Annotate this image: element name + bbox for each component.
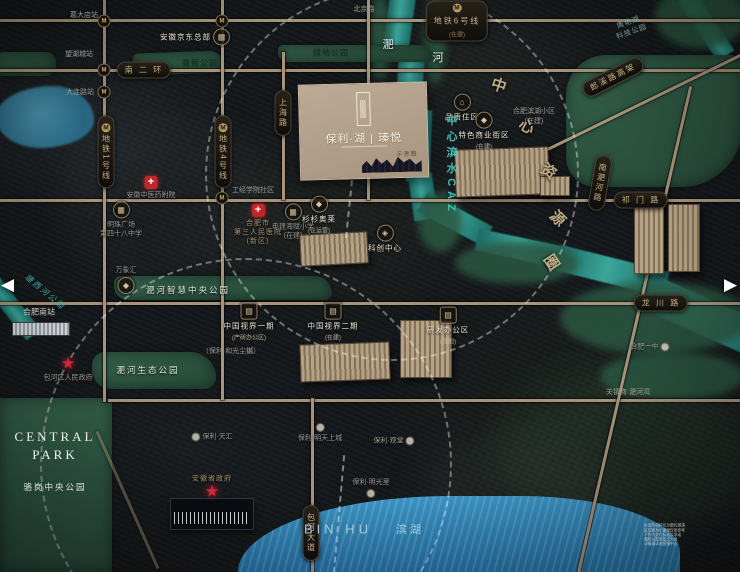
poi-hefei-no1-school-icon	[661, 343, 670, 352]
label-beijing-road: 北京路	[354, 4, 375, 14]
poi-featured-commercial-street-icon: ◆	[476, 112, 493, 129]
poi-rd-office-area-icon: ▤	[440, 307, 457, 324]
poi-poly-tianhui-icon	[191, 433, 200, 442]
central-park-title-en: CENTRAL PARK	[15, 428, 96, 464]
park-strip-west	[0, 52, 56, 76]
poi-rd-office-area: ▤研发办公区(规划)	[427, 307, 470, 346]
poi-poly-mingtian-shangcheng-icon	[316, 423, 325, 432]
project-site-block: 保利·湖 | 瑧悦 示意图	[298, 81, 429, 180]
poi-wanxianghui-mall-icon: ◆	[118, 277, 135, 294]
building-hefei-south-station	[12, 322, 70, 336]
label-station-gedadian: 葛大店站	[70, 10, 98, 20]
poi-third-peoples-hospital-icon: +	[252, 204, 265, 217]
label-poly-heguang-chenyue: （保利·和光尘樾）	[202, 346, 260, 356]
poi-hefei-no1-school: 合肥一中	[631, 342, 670, 351]
label-hefei-south-station: 合肥南站	[23, 307, 55, 318]
poi-featured-commercial-street: ◆特色商业街区(在建)	[459, 112, 510, 151]
road-pill-metro-line-6: M地铁6号线(在建)	[426, 1, 488, 42]
metro-station-marker: M	[98, 86, 111, 99]
label-xiangjie-park: 香街公园	[182, 58, 218, 69]
label-nanyanhu-tech-park: 南艳湖 科技公园	[612, 12, 649, 42]
building-tower-east	[668, 204, 700, 272]
poi-tcm-hospital-icon: +	[145, 176, 158, 189]
poi-baohe-district-government-icon: ★	[61, 357, 75, 371]
project-title: 保利·湖 | 瑧悦	[300, 128, 427, 147]
label-feihe-smart-central-park: 淝河智慧中央公园	[146, 284, 230, 296]
project-logo-mark	[355, 92, 370, 126]
poi-china-vision-phase1: ▤中国视界一期(产研办公区)	[224, 303, 275, 342]
poi-anhui-provincial-government-icon: ★	[205, 486, 219, 500]
poi-poly-mingtian-shangcheng: 保利·明天上城	[298, 423, 342, 443]
poi-sci-innovation-center-icon: ◈	[377, 225, 394, 242]
poi-poly-mingguangli: 保利·明光里	[352, 478, 389, 498]
label-gongjing-college-community: 工经学院社区	[232, 185, 274, 195]
poi-quality-residential-icon: ⌂	[454, 94, 471, 111]
carousel-next-arrow[interactable]: ▶	[724, 276, 737, 293]
label-feihe-eco-park: 淝河生态公园	[116, 364, 179, 376]
poi-china-vision-phase1-icon: ▤	[241, 303, 258, 320]
poi-anhui-jd-headquarters: ▦安徽京东总部	[160, 29, 230, 46]
poi-china-vision-phase2: ▤中国视界二期(在建)	[308, 303, 359, 342]
carousel-prev-arrow[interactable]: ◀	[1, 276, 14, 293]
map-stage: 保利·湖 | 瑧悦 示意图 CENTRAL PARK 骆岗中央公园 ◀ ▶ 本宣…	[0, 0, 740, 572]
poi-baohe-district-government: ★包河区人民政府	[44, 357, 93, 382]
tree-bank	[655, 0, 740, 48]
label-lake-binhu-cn: 滨湖	[396, 521, 424, 537]
park-nanyanhu	[566, 55, 740, 187]
divider	[341, 145, 387, 147]
poi-wanxianghui-mall: ◆万象汇	[116, 266, 137, 294]
label-greenland-park: 绿地公园	[313, 48, 349, 59]
disclaimer-text: 本宣传资料仅为要约邀请区位图为示意图仅供参考不作为交付标准及承诺最终以政府批文为…	[644, 524, 695, 547]
road-pill-shanghai-road: 上海路	[275, 90, 292, 136]
poi-dianjian-haifu-school-icon: ▦	[285, 203, 302, 220]
poi-sci-innovation-center: ◈科创中心	[368, 225, 402, 254]
poi-mingzhu-square-school: ▦明珠广场 第四十八中学	[100, 201, 142, 238]
poi-china-vision-phase2-icon: ▤	[325, 303, 342, 320]
label-station-wanghucheng: 望湖城站	[65, 49, 93, 59]
poi-mingzhu-square-school-icon: ▦	[113, 201, 130, 218]
city-skyline-graphic	[362, 155, 422, 173]
metro-station-marker: M	[216, 192, 229, 205]
metro-station-marker: M	[98, 15, 111, 28]
road-pill-south-2nd-ring: 南 二 环	[117, 62, 171, 79]
label-river-char-fei: 淝	[383, 36, 394, 52]
poi-third-peoples-hospital: +合肥市 第三人民医院 (新区)	[234, 204, 282, 246]
poi-tcm-hospital: +安徽中医药附院	[127, 176, 176, 200]
skyline-caption: 示意图	[396, 149, 417, 159]
road-pill-metro-line-1: M地铁1号线	[98, 115, 115, 188]
poi-poly-mingguangli-icon	[367, 489, 376, 498]
road-pill-metro-line-4: M地铁4号线	[215, 115, 232, 188]
central-park-title-cn: 骆岗中央公园	[23, 481, 86, 493]
building-tower-east	[634, 198, 664, 274]
label-central-waterfront-caz: 中心滨水CAZ	[443, 114, 459, 216]
poi-poly-guantang-icon	[406, 437, 415, 446]
metro-station-marker: M	[98, 64, 111, 77]
poi-poly-guantang: 保利·观堂	[373, 436, 414, 445]
label-river-char-he: 河	[433, 49, 444, 65]
road-pill-longchuan-road: 龙 川 路	[634, 295, 688, 312]
metro-station-marker: M	[216, 15, 229, 28]
label-station-dalianlu: 大连路站	[66, 87, 94, 97]
label-lake-binhu-en: BIN HU	[304, 522, 372, 537]
poi-anhui-provincial-government: ★安徽省政府	[192, 474, 232, 499]
poi-poly-tianhui: 保利·天汇	[191, 432, 232, 441]
label-guanzhen-feihewan: 关镇商·淝河湾	[606, 387, 650, 397]
poi-anhui-jd-headquarters-icon: ▦	[213, 29, 230, 46]
road-pill-qimen-road: 祁 门 路	[614, 192, 668, 209]
